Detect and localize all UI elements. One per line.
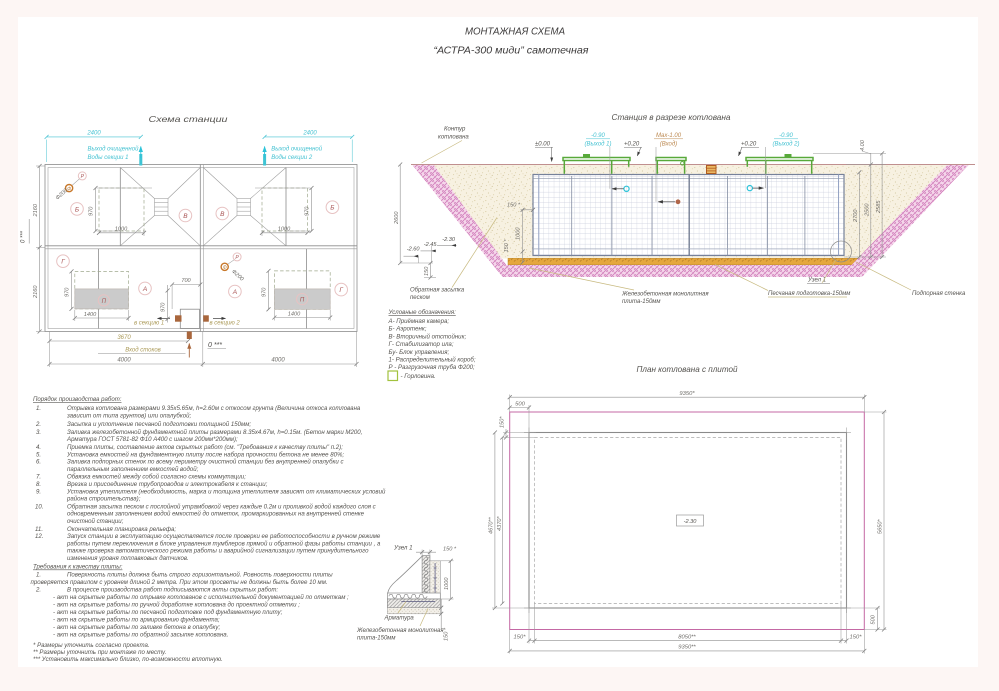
svg-text:Требования к качеству плиты:: Требования к качеству плиты: (33, 564, 123, 571)
svg-text:0 ***: 0 *** (21, 230, 27, 243)
svg-text:3670: 3670 (117, 335, 131, 341)
svg-text:*** Установить максимально бл: *** Установить максимально близко, по-во… (33, 656, 223, 663)
svg-text:150*: 150* (500, 416, 506, 428)
svg-text:Узел 1: Узел 1 (393, 545, 413, 552)
svg-text:150 *: 150 * (443, 547, 457, 553)
svg-text:11.: 11. (35, 526, 43, 533)
svg-text:150: 150 (424, 266, 430, 276)
svg-text:8.: 8. (36, 481, 41, 488)
svg-text:9.: 9. (36, 488, 41, 495)
svg-text:П: П (300, 298, 305, 304)
svg-text:П: П (102, 299, 107, 305)
svg-text:970: 970 (305, 206, 311, 216)
svg-text:4.: 4. (36, 444, 41, 451)
svg-text:150*: 150* (850, 635, 863, 641)
svg-text:1400: 1400 (288, 312, 301, 318)
svg-text:- акт на скрытые работы по зал: - акт на скрытые работы по заливке бетон… (53, 624, 220, 631)
svg-text:970: 970 (89, 206, 95, 216)
svg-text:также проверка автоматического: также проверка автоматического режима ра… (67, 548, 369, 555)
svg-text:8050**: 8050** (678, 635, 696, 641)
svg-text:одновременным заполнением водо: одновременным заполнением водой емкостей… (67, 511, 365, 518)
svg-text:1- Распределительный короб;: 1- Распределительный короб; (389, 357, 476, 364)
svg-text:Арматура: Арматура (384, 616, 415, 622)
svg-text:Станция в разрезе котлована: Станция в разрезе котлована (612, 112, 731, 122)
svg-text:9350**: 9350** (678, 645, 696, 651)
svg-text:Б: Б (75, 206, 79, 213)
svg-text:±0.00: ±0.00 (535, 142, 551, 148)
svg-text:1000: 1000 (278, 227, 291, 233)
svg-text:(Выход 1): (Выход 1) (584, 142, 611, 148)
svg-text:2600: 2600 (394, 211, 400, 225)
svg-text:(Вход): (Вход) (660, 142, 677, 148)
svg-text:Поверхность плиты должна быть: Поверхность плиты должна быть строго гор… (67, 572, 333, 579)
svg-text:150 *: 150 * (444, 627, 450, 641)
svg-text:зависит от типа грунтов) или о: зависит от типа грунтов) или опалубкой; (66, 412, 191, 419)
svg-text:МОНТАЖНАЯ СХЕМА: МОНТАЖНАЯ СХЕМА (465, 26, 565, 38)
svg-text:2160: 2160 (33, 203, 39, 217)
svg-text:котлована: котлована (438, 135, 469, 141)
svg-text:работы путем переключения в бл: работы путем переключения в блоке управл… (66, 540, 381, 547)
svg-text:Приемка плиты, составление акт: Приемка плиты, составление актов скрытых… (67, 444, 343, 451)
svg-text:Схема станции: Схема станции (149, 114, 228, 124)
svg-text:4670**: 4670** (489, 516, 495, 534)
svg-text:7.: 7. (36, 474, 41, 481)
svg-text:Вход стоков: Вход стоков (125, 348, 161, 354)
svg-text:2160: 2160 (33, 285, 39, 299)
svg-text:4000: 4000 (271, 358, 285, 364)
svg-text:- акт на скрытые работы по отр: - акт на скрытые работы по отрывке котло… (53, 594, 349, 601)
svg-text:1000: 1000 (516, 227, 522, 240)
svg-text:А: А (142, 286, 147, 293)
svg-text:150*: 150* (514, 635, 527, 641)
svg-text:А- Приёмная камера;: А- Приёмная камера; (388, 318, 450, 325)
svg-text:План котлована с плитой: План котлована с плитой (637, 364, 738, 374)
svg-text:+0.20: +0.20 (624, 142, 640, 148)
svg-text:плита-150мм: плита-150мм (622, 299, 661, 305)
svg-text:2585: 2585 (876, 200, 882, 214)
svg-text:- акт на скрытые работы по обр: - акт на скрытые работы по обратной засы… (53, 632, 228, 639)
svg-text:параллельным заполнением емкос: параллельным заполнением емкостей водой; (67, 466, 199, 473)
svg-text:-2.60: -2.60 (407, 246, 421, 252)
svg-text:В: В (220, 211, 225, 218)
svg-text:Обратная засыпка песком с посл: Обратная засыпка песком с послойной утра… (67, 503, 376, 510)
svg-text:** Размеры уточнить при монта: ** Размеры уточнить при монтаже по месту… (33, 649, 166, 656)
svg-text:в секцию 1: в секцию 1 (134, 321, 164, 327)
svg-text:А: А (232, 289, 237, 296)
svg-text:- акт на скрытые работы по руч: - акт на скрытые работы по ручной дорабо… (53, 602, 300, 609)
svg-text:5.: 5. (36, 451, 41, 458)
svg-text:Обвязка емкостей между собой с: Обвязка емкостей между собой согласно сх… (67, 474, 246, 481)
svg-text:Воды секции 2: Воды секции 2 (271, 155, 313, 161)
svg-text:6.: 6. (36, 459, 41, 466)
svg-text:1.: 1. (36, 405, 41, 412)
svg-text:изменения уровня поплавковых д: изменения уровня поплавковых датчиков. (67, 555, 189, 562)
svg-text:в секцию 2: в секцию 2 (210, 321, 241, 327)
svg-text:12.: 12. (35, 533, 43, 540)
svg-text:2.: 2. (35, 587, 41, 594)
svg-text:Заливка железобетонной фундаме: Заливка железобетонной фундаментной плит… (67, 429, 362, 436)
svg-text:10.: 10. (35, 503, 43, 510)
svg-text:Контур: Контур (444, 127, 466, 133)
svg-text:Железобетонная монолитная: Железобетонная монолитная (621, 292, 709, 298)
svg-text:4000: 4000 (117, 358, 131, 364)
svg-text:Выход очищенной: Выход очищенной (88, 146, 140, 153)
svg-text:проверяется правилом с уровнем: проверяется правилом с уровнем длиной 2 … (31, 579, 328, 586)
svg-text:Ф: Ф (223, 265, 227, 271)
svg-text:Б: Б (330, 205, 334, 212)
svg-text:Г- Стабилизатор ила;: Г- Стабилизатор ила; (389, 341, 454, 348)
svg-text:очистной станции;: очистной станции; (67, 518, 124, 525)
svg-text:-2.30: -2.30 (684, 519, 698, 525)
svg-text:Подпорная стенка: Подпорная стенка (912, 291, 966, 297)
svg-text:- акт на скрытые работы по пес: - акт на скрытые работы по песчаной подг… (53, 609, 283, 616)
svg-text:Заливка подпорных стенок по вс: Заливка подпорных стенок по всему периме… (67, 459, 344, 466)
svg-text:- акт на скрытые работы по арм: - акт на скрытые работы по армированию ф… (53, 617, 220, 624)
svg-text:Установка емкостей на фундамен: Установка емкостей на фундаментную плиту… (66, 451, 344, 458)
svg-text:1.: 1. (36, 572, 41, 579)
svg-text:Установка утеплителя (необходи: Установка утеплителя (необходимость, мар… (66, 488, 386, 495)
svg-text:Г: Г (61, 259, 65, 266)
svg-text:плита-150мм: плита-150мм (357, 636, 396, 642)
svg-text:Отрывка котлована размерами 9.: Отрывка котлована размерами 9.35х5.65м, … (67, 405, 361, 412)
svg-text:Врезка и присоединение трубопр: Врезка и присоединение трубопроводов и э… (67, 481, 268, 488)
svg-text:песком: песком (410, 295, 430, 301)
svg-text:2700: 2700 (853, 209, 859, 223)
svg-text:4370*: 4370* (497, 516, 503, 531)
svg-text:Засыпка и уплотнение песчаной: Засыпка и уплотнение песчаной подготовки… (67, 421, 251, 428)
svg-text:Железобетонная монолитная: Железобетонная монолитная (356, 628, 444, 634)
svg-text:500: 500 (871, 614, 877, 624)
svg-text:970: 970 (65, 287, 71, 297)
svg-text:2400: 2400 (86, 130, 101, 136)
svg-text:2400: 2400 (302, 130, 317, 136)
svg-text:1400: 1400 (84, 312, 97, 318)
svg-text:- Горловина.: - Горловина. (401, 373, 436, 380)
svg-text:150 *: 150 * (504, 239, 510, 253)
svg-text:4.00: 4.00 (860, 139, 866, 151)
svg-text:(Выход 2): (Выход 2) (772, 142, 799, 148)
svg-text:2500: 2500 (865, 203, 871, 217)
svg-text:700: 700 (181, 278, 191, 284)
svg-text:5650*: 5650* (878, 519, 884, 534)
svg-text:970: 970 (161, 302, 167, 312)
svg-text:500: 500 (515, 401, 525, 407)
svg-text:3.: 3. (36, 429, 41, 436)
svg-text:-2.30: -2.30 (442, 237, 456, 243)
svg-text:0 ***: 0 *** (208, 342, 222, 349)
svg-text:+0.20: +0.20 (741, 142, 757, 148)
svg-text:* Размеры уточнить согласно п: * Размеры уточнить согласно проекта. (33, 642, 150, 649)
svg-text:Песчаная подготовка-150мм: Песчаная подготовка-150мм (768, 291, 850, 297)
svg-text:970: 970 (262, 287, 268, 297)
svg-text:Арматура ГОСТ 5781-82 Ф10 А400: Арматура ГОСТ 5781-82 Ф10 А400 с шагом 2… (66, 436, 238, 443)
svg-text:Р - Разгрузочная труба Ф200;: Р - Разгрузочная труба Ф200; (389, 364, 475, 371)
svg-text:1000: 1000 (115, 227, 128, 233)
svg-text:Условные обозначения:: Условные обозначения: (388, 309, 457, 316)
svg-text:150 *: 150 * (507, 203, 521, 209)
svg-text:Бу- Блок управления;: Бу- Блок управления; (389, 349, 450, 356)
svg-text:Запуск станции в эксплуатацию: Запуск станции в эксплуатацию осуществля… (67, 533, 381, 540)
svg-text:Б- Аэротенк;: Б- Аэротенк; (389, 326, 427, 333)
svg-text:В: В (183, 213, 188, 220)
svg-text:Обратная засыпка: Обратная засыпка (410, 288, 465, 294)
svg-text:-2.45: -2.45 (424, 242, 438, 248)
svg-text:В процессе производства работ: В процессе производства работ подписываю… (67, 587, 278, 594)
svg-text:“АСТРА-300 миди” самотечная: “АСТРА-300 миди” самотечная (434, 46, 590, 57)
svg-text:1000: 1000 (444, 577, 450, 590)
svg-text:Мах-1.00: Мах-1.00 (656, 133, 682, 139)
svg-text:района строительства);: района строительства); (66, 496, 141, 503)
svg-text:Выход очищенной: Выход очищенной (271, 146, 323, 153)
svg-text:Порядок производства работ:: Порядок производства работ: (33, 396, 122, 403)
svg-text:В- Вторичный отстойник;: В- Вторичный отстойник; (389, 333, 467, 340)
svg-text:-0.90: -0.90 (591, 133, 605, 139)
svg-text:Воды секции 1: Воды секции 1 (88, 155, 129, 161)
svg-text:9350*: 9350* (679, 391, 695, 397)
svg-text:Г: Г (339, 287, 343, 294)
svg-text:Окончательная планировка релье: Окончательная планировка рельефа; (67, 526, 176, 533)
svg-text:2.: 2. (35, 421, 41, 428)
svg-text:-0.90: -0.90 (779, 133, 793, 139)
